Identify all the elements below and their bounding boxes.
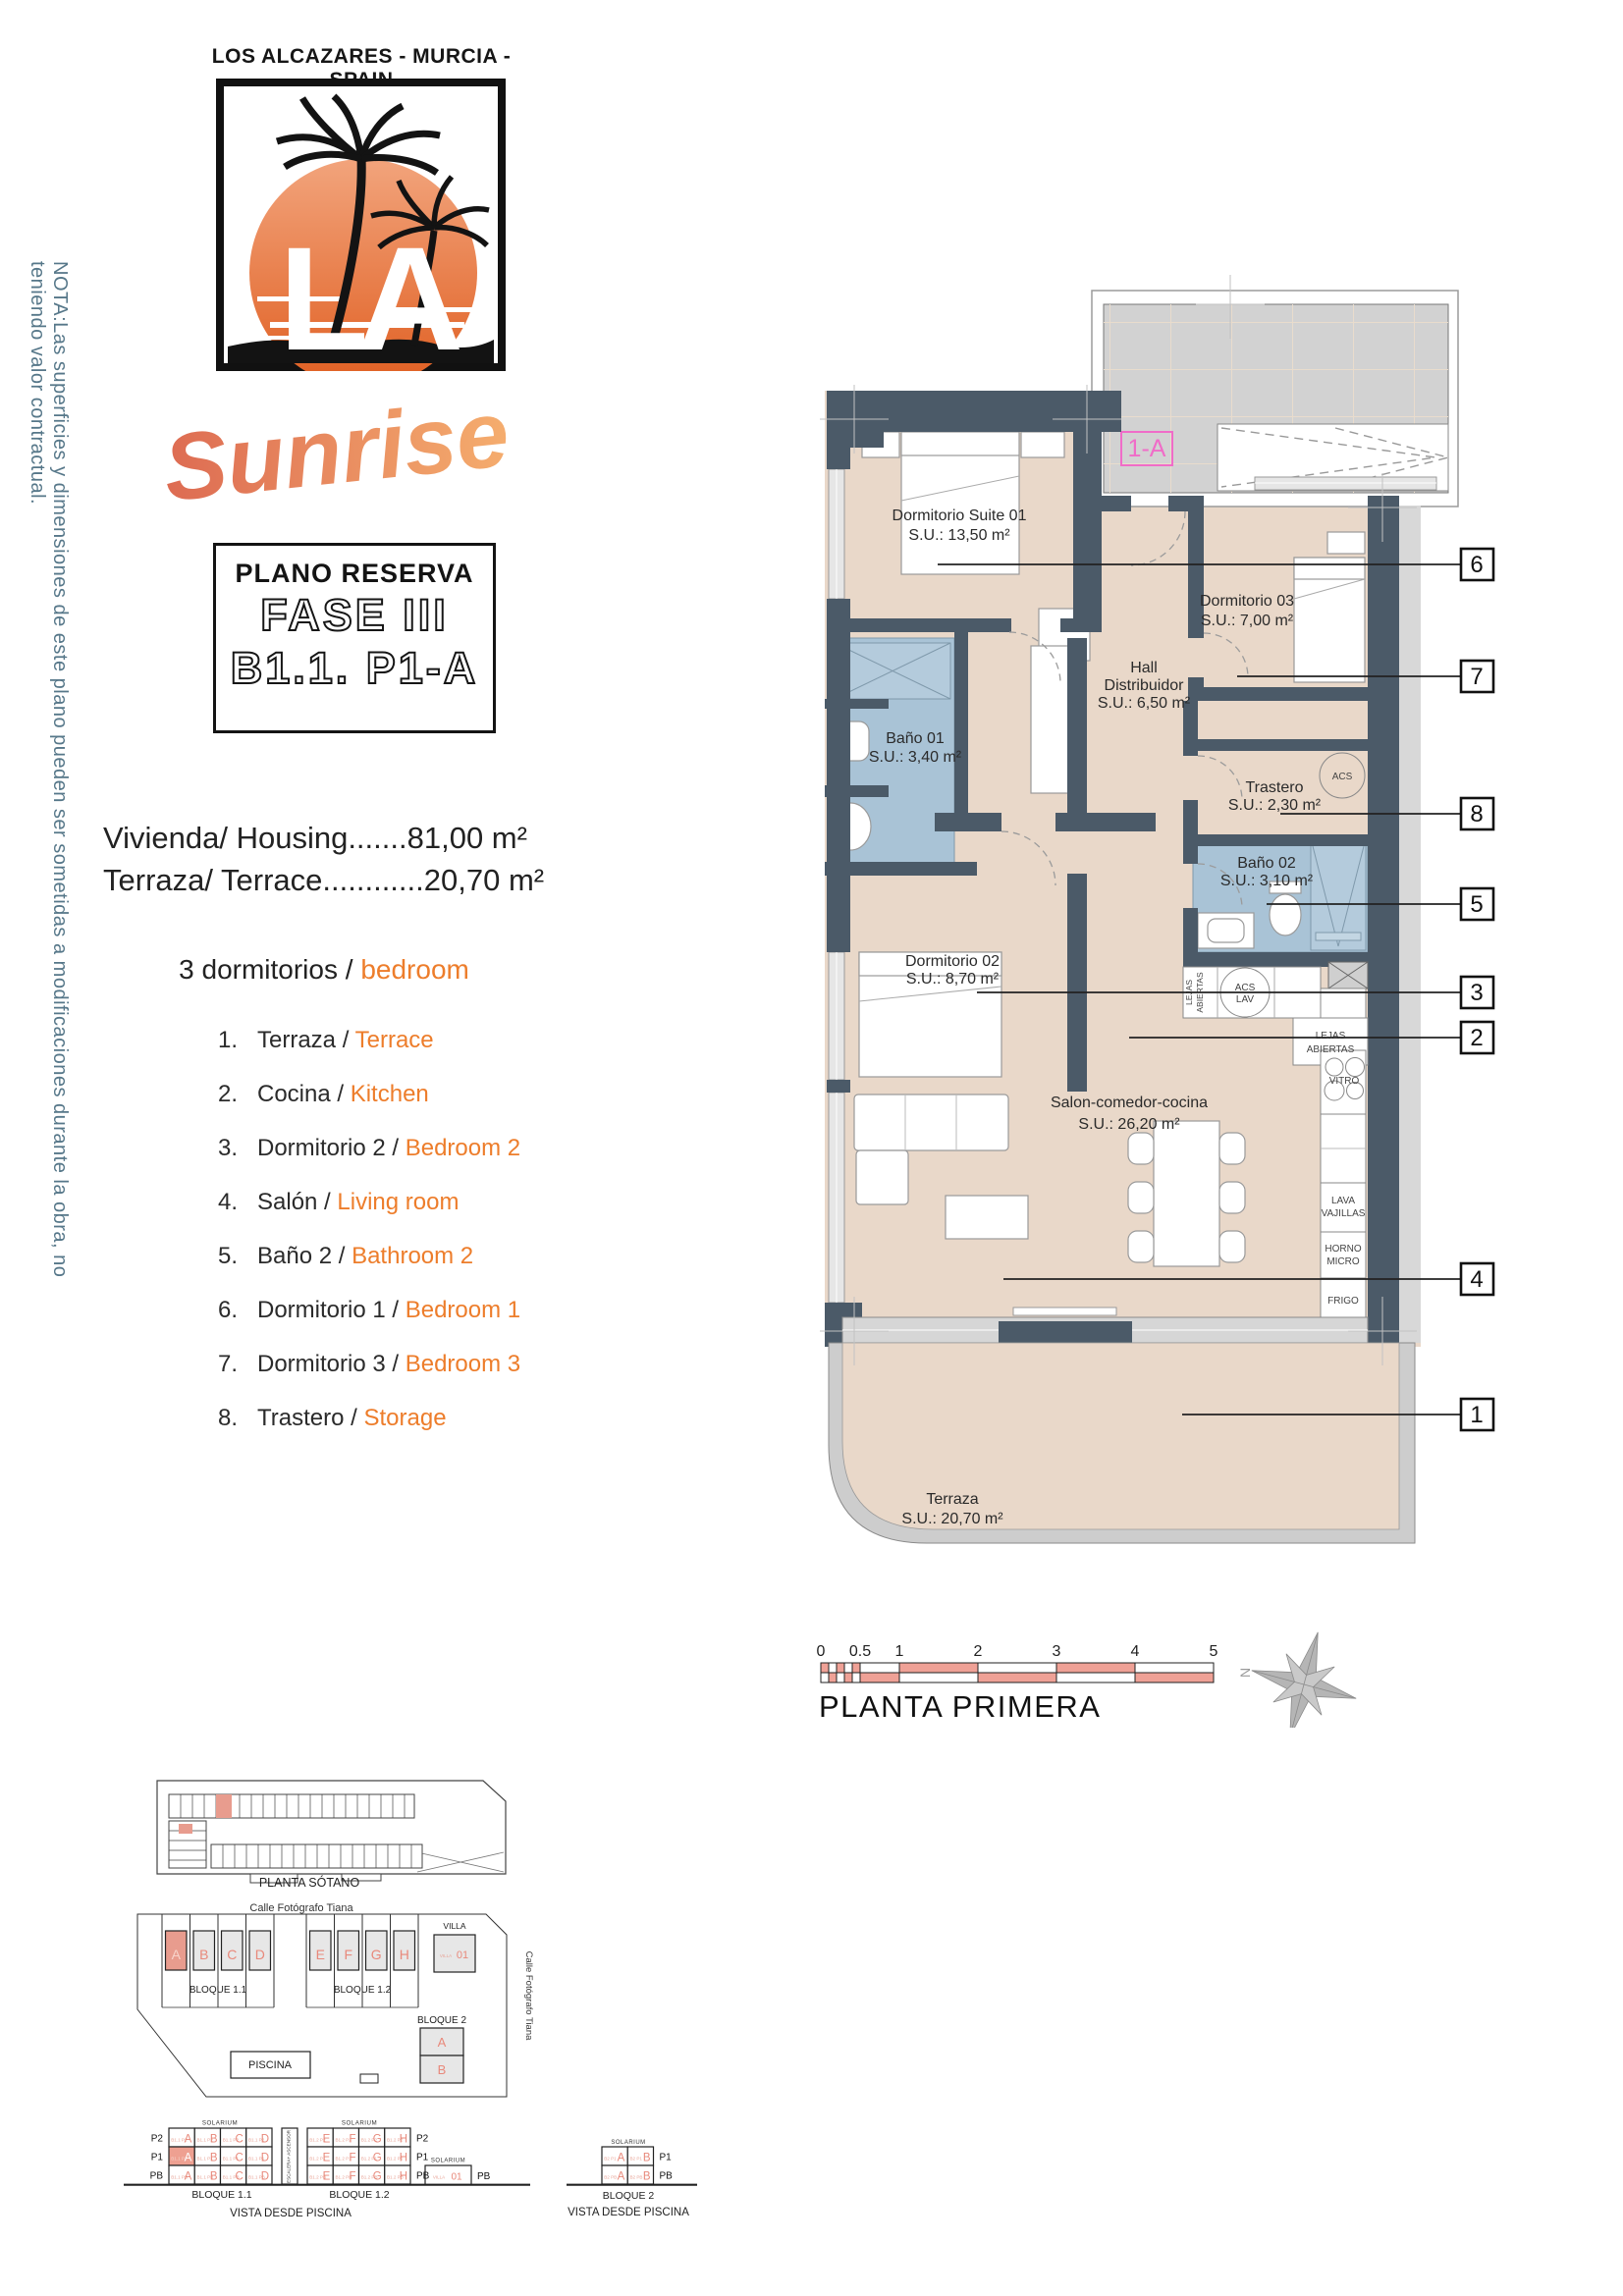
svg-text:D: D	[255, 1947, 265, 1962]
basement-label: PLANTA SÓTANO	[259, 1875, 360, 1890]
svg-text:BLOQUE 2: BLOQUE 2	[603, 2190, 655, 2202]
svg-text:S.U.: 13,50 m²: S.U.: 13,50 m²	[908, 527, 1010, 544]
svg-text:E: E	[323, 2134, 331, 2146]
svg-text:BLOQUE 1.2: BLOQUE 1.2	[329, 2189, 389, 2201]
unit-tag: 1-A	[1128, 435, 1166, 462]
svg-text:PB: PB	[416, 2171, 430, 2182]
room-label: Terraza	[926, 1491, 978, 1508]
sunrise-script: Sunrise	[145, 383, 528, 530]
svg-text:D: D	[261, 2153, 269, 2164]
svg-text:3: 3	[1053, 1643, 1061, 1660]
room-label: Dormitorio 03	[1200, 593, 1294, 610]
callout-2: 2	[1470, 1025, 1483, 1051]
svg-text:FRIGO: FRIGO	[1327, 1296, 1359, 1307]
svg-text:SOLARIUM: SOLARIUM	[611, 2140, 645, 2146]
compass-rose-icon: N	[1237, 1619, 1370, 1728]
svg-text:B2 PB: B2 PB	[604, 2175, 617, 2180]
svg-text:B: B	[643, 2153, 651, 2164]
svg-text:A: A	[618, 2171, 625, 2183]
legend-item: 8.Trastero / Storage	[218, 1405, 520, 1459]
svg-text:P1: P1	[151, 2153, 164, 2163]
housing-area-line: Vivienda/ Housing.......81,00 m²	[103, 817, 544, 859]
svg-text:E: E	[323, 2171, 331, 2183]
svg-text:E: E	[316, 1947, 325, 1962]
legend-item: 1.Terraza / Terrace	[218, 1027, 520, 1081]
svg-text:C: C	[235, 2171, 243, 2183]
bedrooms-line: 3 dormitorios / bedroom	[137, 954, 511, 986]
callout-7: 7	[1470, 664, 1483, 690]
svg-text:A: A	[618, 2153, 625, 2164]
svg-text:G: G	[373, 2153, 382, 2164]
svg-text:A: A	[185, 2134, 192, 2146]
plano-reserva-sheet: NOTA:Las superficies y dimensiones de es…	[0, 0, 1623, 2296]
room-label: Salon-comedor-cocina	[1051, 1095, 1208, 1111]
svg-text:P2: P2	[151, 2134, 164, 2145]
callout-3: 3	[1470, 980, 1483, 1006]
svg-text:H: H	[400, 2153, 407, 2164]
site-plan: VILLA VILLA 01 BLOQUE 1.1 BLOQUE 1.2 BLO…	[137, 1914, 534, 2097]
reserve-box: PLANO RESERVA FASE III B1.1. P1-A	[213, 543, 496, 733]
reserve-title: PLANO RESERVA	[216, 559, 493, 589]
svg-text:B: B	[643, 2171, 651, 2183]
svg-text:PB: PB	[477, 2171, 491, 2182]
svg-text:F: F	[349, 2171, 355, 2183]
svg-text:A: A	[438, 2035, 447, 2050]
svg-text:S.U.: 3,40 m²: S.U.: 3,40 m²	[869, 749, 962, 766]
legend-item: 3.Dormitorio 2 / Bedroom 2	[218, 1135, 520, 1189]
svg-text:MICRO: MICRO	[1326, 1256, 1360, 1267]
svg-text:C: C	[227, 1947, 237, 1962]
villa-label: VILLA	[443, 1921, 465, 1931]
shower-icon	[1311, 844, 1366, 950]
svg-text:C: C	[235, 2153, 243, 2164]
callout-8: 8	[1470, 801, 1483, 828]
phase-label: FASE III	[216, 589, 493, 642]
svg-text:ACS: ACS	[1332, 772, 1353, 782]
pool-label: PISCINA	[248, 2059, 293, 2071]
svg-text:P1: P1	[660, 2153, 673, 2163]
la-sunrise-logo: LA	[216, 79, 506, 371]
svg-text:A: A	[185, 2153, 192, 2164]
callout-boxes: 6 7 8 5 3 2 4 1	[1461, 549, 1493, 1430]
svg-text:4: 4	[1131, 1643, 1140, 1660]
svg-text:01: 01	[457, 1949, 468, 1961]
callout-1: 1	[1470, 1402, 1483, 1428]
svg-text:ESCALERA+ ASCENSOR: ESCALERA+ ASCENSOR	[287, 2129, 292, 2183]
site-minimaps: PLANTA SÓTANO Calle Fotógrafo Tiana VILL…	[118, 1762, 835, 2263]
svg-text:G: G	[373, 2134, 382, 2146]
svg-text:G: G	[371, 1947, 382, 1962]
svg-text:PB: PB	[150, 2171, 164, 2182]
svg-text:B: B	[438, 2062, 447, 2077]
scale-bar: 00.512345	[817, 1643, 1218, 1682]
script-name: Sunrise	[159, 383, 514, 521]
svg-text:A: A	[172, 1947, 182, 1962]
svg-text:0: 0	[817, 1643, 826, 1660]
svg-text:S.U.: 6,50 m²: S.U.: 6,50 m²	[1098, 695, 1191, 712]
svg-text:1: 1	[895, 1643, 904, 1660]
svg-text:P2: P2	[416, 2134, 429, 2145]
area-summary: Vivienda/ Housing.......81,00 m² Terraza…	[103, 817, 544, 901]
room-label: Trastero	[1246, 779, 1304, 796]
svg-text:LEJAS: LEJAS	[1316, 1031, 1346, 1041]
svg-text:VILLA: VILLA	[433, 2175, 445, 2180]
callout-4: 4	[1470, 1266, 1483, 1293]
svg-text:HORNO: HORNO	[1325, 1244, 1361, 1255]
svg-text:A: A	[185, 2171, 192, 2183]
svg-text:P1: P1	[416, 2153, 429, 2163]
svg-text:G: G	[373, 2171, 382, 2183]
svg-text:5: 5	[1210, 1643, 1218, 1660]
svg-text:S.U.: 2,30 m²: S.U.: 2,30 m²	[1228, 797, 1322, 814]
legend-item: 7.Dormitorio 3 / Bedroom 3	[218, 1351, 520, 1405]
svg-text:F: F	[349, 2134, 355, 2146]
room-label: Baño 01	[886, 730, 945, 747]
svg-text:B: B	[210, 2153, 218, 2164]
room-label: Baño 02	[1237, 855, 1296, 872]
svg-text:0.5: 0.5	[849, 1643, 871, 1660]
svg-text:F: F	[349, 2153, 355, 2164]
logo-monogram: LA	[279, 216, 460, 371]
svg-text:B: B	[210, 2134, 218, 2146]
svg-text:D: D	[261, 2171, 269, 2183]
legend-item: 6.Dormitorio 1 / Bedroom 1	[218, 1297, 520, 1351]
svg-text:C: C	[235, 2134, 243, 2146]
terrace-area-line: Terraza/ Terrace............20,70 m²	[103, 859, 544, 901]
bloque2-label: BLOQUE 2	[417, 2015, 466, 2026]
svg-text:B2 P1: B2 P1	[604, 2157, 617, 2162]
unit-label: B1.1. P1-A	[216, 642, 493, 695]
legend-item: 4.Salón / Living room	[218, 1189, 520, 1243]
room-legend: 1.Terraza / Terrace 2.Cocina / Kitchen 3…	[218, 1027, 520, 1459]
svg-text:S.U.: 20,70 m²: S.U.: 20,70 m²	[901, 1511, 1003, 1527]
svg-text:2: 2	[974, 1643, 983, 1660]
svg-text:SOLARIUM: SOLARIUM	[342, 2120, 377, 2127]
svg-text:S.U.: 8,70 m²: S.U.: 8,70 m²	[906, 971, 1000, 988]
svg-text:D: D	[261, 2134, 269, 2146]
legend-item: 5.Baño 2 / Bathroom 2	[218, 1243, 520, 1297]
svg-text:B: B	[210, 2171, 218, 2183]
svg-text:H: H	[400, 2171, 407, 2183]
vista-caption: VISTA DESDE PISCINA	[568, 2207, 689, 2218]
svg-text:VITRO: VITRO	[1329, 1076, 1360, 1087]
vista-caption: VISTA DESDE PISCINA	[230, 2208, 352, 2219]
svg-text:B2 PB: B2 PB	[629, 2175, 642, 2180]
svg-text:N: N	[1237, 1668, 1253, 1678]
floor-title: PLANTA PRIMERA	[819, 1689, 1101, 1724]
svg-text:PB: PB	[660, 2171, 674, 2182]
svg-text:SOLARIUM: SOLARIUM	[202, 2120, 238, 2127]
svg-text:B2 P1: B2 P1	[629, 2157, 642, 2162]
svg-text:S.U.: 7,00 m²: S.U.: 7,00 m²	[1201, 613, 1294, 629]
svg-text:01: 01	[451, 2172, 462, 2183]
roof-hatch-area: 1-A	[1092, 291, 1458, 507]
legend-item: 2.Cocina / Kitchen	[218, 1081, 520, 1135]
street-label: Calle Fotógrafo Tiana	[249, 1902, 353, 1914]
svg-text:Distribuidor: Distribuidor	[1105, 677, 1185, 694]
basement-plan	[157, 1781, 506, 1883]
toilet-icon	[1270, 894, 1301, 935]
svg-text:B: B	[199, 1947, 208, 1962]
svg-text:VILLA: VILLA	[440, 1953, 452, 1958]
exterior-strip	[1399, 506, 1421, 1343]
room-label: Dormitorio Suite 01	[893, 507, 1027, 524]
room-label: Dormitorio 02	[905, 953, 1000, 970]
floor-plan: 1-A	[805, 275, 1502, 1728]
svg-text:ABIERTAS: ABIERTAS	[1307, 1044, 1355, 1055]
svg-text:BLOQUE 1.1: BLOQUE 1.1	[191, 2189, 251, 2201]
svg-text:H: H	[400, 1947, 409, 1962]
room-label: Hall	[1130, 660, 1158, 676]
callout-5: 5	[1470, 891, 1483, 918]
svg-text:F: F	[344, 1947, 352, 1962]
svg-text:H: H	[400, 2134, 407, 2146]
svg-text:LAVA: LAVA	[1331, 1196, 1355, 1206]
svg-text:S.U.: 26,20 m²: S.U.: 26,20 m²	[1078, 1116, 1180, 1133]
svg-text:E: E	[323, 2153, 331, 2164]
svg-text:SOLARIUM: SOLARIUM	[431, 2159, 465, 2164]
svg-text:S.U.: 3,10 m²: S.U.: 3,10 m²	[1220, 873, 1314, 889]
callout-6: 6	[1470, 552, 1483, 578]
street-side-label: Calle Fotógrafo Tiana	[523, 1951, 534, 2042]
side-disclaimer-note: NOTA:Las superficies y dimensiones de es…	[37, 261, 71, 1351]
svg-text:VAJILLAS: VAJILLAS	[1322, 1208, 1366, 1219]
svg-text:LAV: LAV	[1236, 994, 1254, 1005]
elevation-diagrams: SOLARIUM SOLARIUM ESCALERA+ ASCENSOR SOL…	[124, 2120, 697, 2220]
